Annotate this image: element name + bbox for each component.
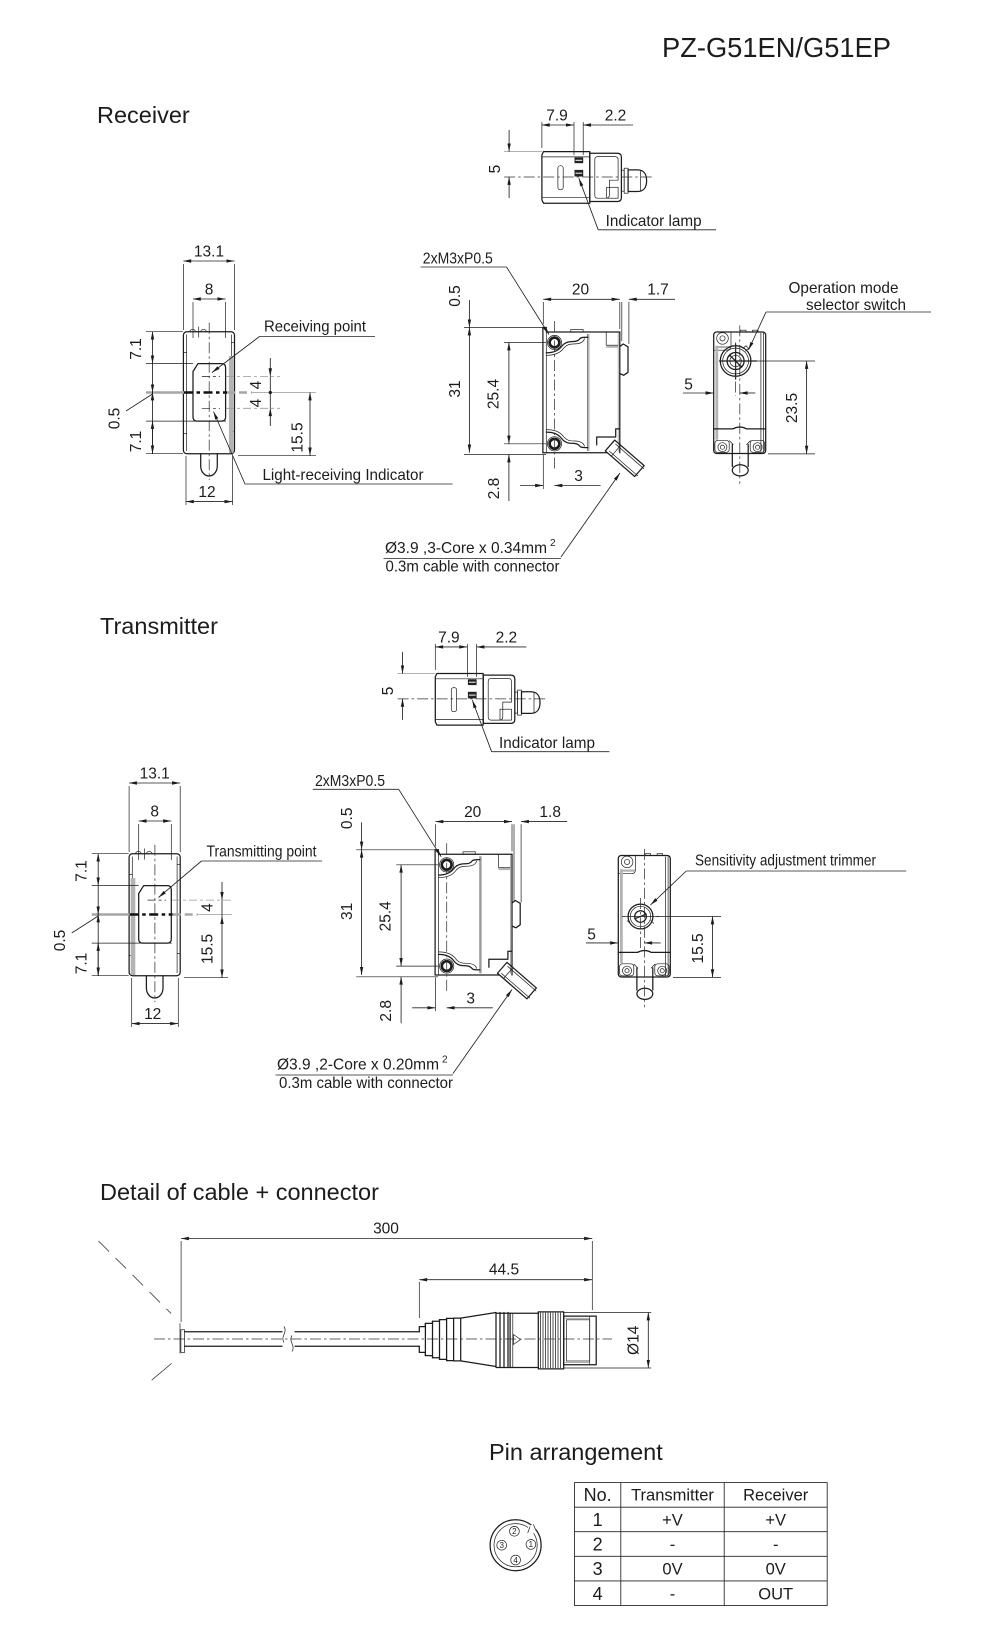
svg-text:13.1: 13.1: [194, 244, 224, 261]
svg-text:3: 3: [466, 990, 475, 1007]
svg-text:3: 3: [499, 1541, 504, 1550]
svg-text:1.7: 1.7: [647, 282, 669, 299]
svg-text:+V: +V: [765, 1512, 786, 1530]
svg-text:0.5: 0.5: [339, 808, 356, 830]
svg-text:3: 3: [574, 468, 583, 485]
svg-text:31: 31: [447, 380, 464, 397]
svg-text:13.1: 13.1: [140, 766, 170, 783]
svg-text:1.8: 1.8: [539, 804, 561, 821]
svg-text:7.9: 7.9: [546, 108, 568, 125]
svg-text:25.4: 25.4: [486, 379, 503, 410]
svg-text:Receiving point: Receiving point: [264, 319, 367, 336]
svg-text:4: 4: [200, 903, 217, 912]
svg-text:2: 2: [593, 1535, 603, 1555]
svg-text:Operation mode: Operation mode: [789, 280, 899, 297]
svg-text:20: 20: [572, 282, 590, 299]
svg-text:Indicator lamp: Indicator lamp: [499, 735, 595, 752]
svg-text:2.2: 2.2: [605, 108, 627, 125]
svg-text:7.1: 7.1: [128, 431, 145, 453]
svg-text:-: -: [670, 1585, 676, 1603]
svg-text:+V: +V: [662, 1512, 683, 1530]
svg-text:PZ-G51EN/G51EP: PZ-G51EN/G51EP: [662, 32, 891, 63]
svg-text:1: 1: [529, 1540, 534, 1549]
svg-text:5: 5: [487, 165, 504, 174]
svg-text:Ø14: Ø14: [626, 1325, 643, 1355]
svg-text:Receiver: Receiver: [743, 1487, 809, 1505]
svg-text:8: 8: [150, 804, 159, 821]
svg-text:7.1: 7.1: [74, 953, 91, 975]
svg-text:5: 5: [587, 926, 596, 943]
svg-text:2: 2: [442, 1055, 448, 1066]
svg-text:Light-receiving Indicator: Light-receiving Indicator: [263, 467, 425, 484]
svg-text:0.5: 0.5: [52, 930, 69, 952]
svg-text:0.3m cable with connector: 0.3m cable with connector: [279, 1075, 454, 1092]
svg-text:12: 12: [144, 1006, 161, 1023]
svg-text:Detail of cable + connector: Detail of cable + connector: [100, 1179, 379, 1205]
svg-text:selector switch: selector switch: [806, 297, 906, 314]
svg-text:15.5: 15.5: [200, 934, 217, 964]
svg-text:0.5: 0.5: [447, 285, 464, 307]
svg-text:15.5: 15.5: [690, 933, 707, 963]
svg-text:0V: 0V: [766, 1561, 786, 1579]
svg-text:4: 4: [248, 380, 265, 389]
svg-text:4: 4: [248, 398, 265, 407]
svg-text:No.: No.: [584, 1485, 612, 1505]
svg-text:2: 2: [512, 1527, 517, 1536]
svg-text:300: 300: [373, 1221, 399, 1238]
svg-text:2xM3xP0.5: 2xM3xP0.5: [315, 773, 385, 790]
svg-text:0.3m cable with connector: 0.3m cable with connector: [386, 559, 561, 576]
svg-text:20: 20: [464, 804, 482, 821]
svg-text:Transmitter: Transmitter: [100, 613, 218, 639]
svg-text:12: 12: [198, 484, 215, 501]
svg-text:3: 3: [593, 1559, 603, 1579]
svg-text:31: 31: [339, 903, 356, 920]
svg-text:OUT: OUT: [758, 1585, 793, 1603]
svg-text:2xM3xP0.5: 2xM3xP0.5: [423, 251, 493, 268]
svg-text:15.5: 15.5: [290, 422, 307, 452]
svg-text:Transmitter: Transmitter: [631, 1487, 714, 1505]
svg-text:0V: 0V: [662, 1561, 682, 1579]
svg-text:2.8: 2.8: [486, 478, 503, 500]
svg-text:2.8: 2.8: [378, 1000, 395, 1022]
svg-text:Receiver: Receiver: [97, 102, 190, 128]
svg-text:Ø3.9 ,2-Core x 0.20mm: Ø3.9 ,2-Core x 0.20mm: [277, 1057, 439, 1074]
svg-text:0.5: 0.5: [107, 408, 124, 430]
svg-text:Ø3.9 ,3-Core x 0.34mm: Ø3.9 ,3-Core x 0.34mm: [385, 540, 547, 557]
svg-text:2: 2: [550, 538, 556, 549]
svg-text:25.4: 25.4: [378, 901, 395, 932]
svg-text:8: 8: [205, 282, 214, 299]
svg-text:4: 4: [513, 1556, 518, 1565]
svg-text:23.5: 23.5: [784, 393, 801, 423]
svg-text:-: -: [670, 1536, 676, 1554]
svg-text:7.1: 7.1: [74, 860, 91, 882]
svg-text:7.1: 7.1: [128, 338, 145, 360]
svg-text:1: 1: [593, 1510, 603, 1530]
svg-text:Pin arrangement: Pin arrangement: [489, 1439, 663, 1465]
svg-text:44.5: 44.5: [489, 1262, 519, 1279]
svg-text:5: 5: [684, 377, 693, 394]
svg-text:Indicator lamp: Indicator lamp: [606, 213, 702, 230]
svg-text:4: 4: [593, 1584, 603, 1604]
svg-text:2.2: 2.2: [496, 629, 518, 646]
svg-text:Transmitting point: Transmitting point: [207, 844, 317, 861]
svg-text:5: 5: [380, 687, 397, 696]
svg-text:Sensitivity adjustment trimmer: Sensitivity adjustment trimmer: [695, 853, 877, 870]
svg-text:-: -: [773, 1536, 779, 1554]
svg-text:7.9: 7.9: [438, 629, 460, 646]
